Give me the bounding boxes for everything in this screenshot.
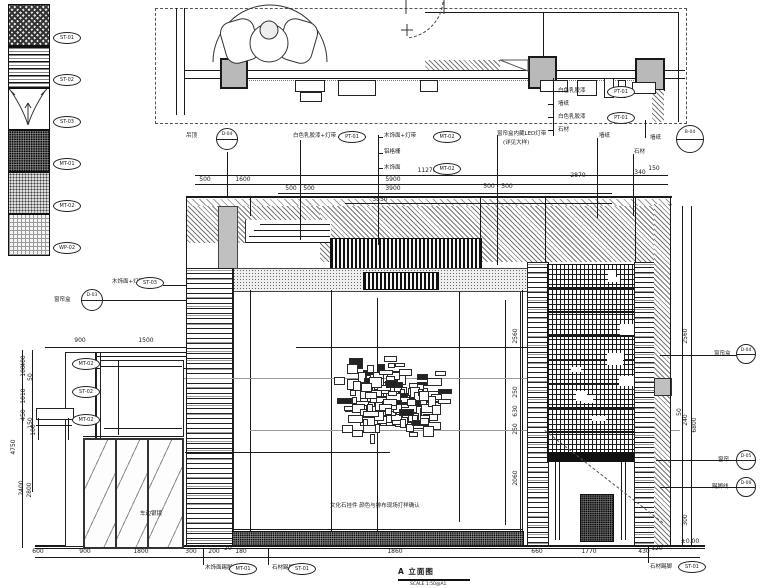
dim-label: 3550	[372, 197, 387, 203]
dim-label: 2060	[513, 470, 519, 485]
annotation: 石材	[634, 149, 645, 155]
art-wall-piece	[399, 409, 414, 415]
leader-line	[548, 91, 554, 92]
art-wall-piece	[399, 369, 412, 376]
callout-divider	[737, 460, 755, 461]
drawing-element	[407, 2, 443, 38]
drawing-title: A 立面图	[398, 566, 508, 577]
legend-swatch-dots-dense	[8, 130, 50, 172]
material-tag: ST-01	[678, 561, 706, 573]
cove-step	[245, 242, 330, 243]
leader-line	[548, 130, 554, 131]
art-wall-piece	[407, 399, 416, 406]
dim-line	[35, 557, 700, 558]
material-tag: ST-02	[72, 386, 100, 398]
detail-callout: B-04	[676, 125, 704, 153]
art-wall-piece	[419, 391, 430, 401]
art-wall-piece	[379, 370, 393, 374]
wall-edge	[232, 268, 233, 545]
annotation: 白色乳胶漆	[558, 88, 586, 94]
dim-line	[520, 292, 521, 533]
leader-line	[645, 120, 646, 138]
side-counter-leg	[38, 418, 39, 440]
annotation: 木饰面	[384, 165, 401, 171]
construction-line	[331, 290, 332, 535]
art-wall-piece	[438, 389, 452, 394]
wall-edge	[522, 290, 523, 535]
dim-label: 250	[513, 423, 519, 434]
annotation: 窗帘盒内藏LED灯带	[497, 131, 546, 137]
side-counter-shelf	[36, 425, 72, 426]
callout-divider	[737, 487, 755, 488]
art-wall-piece	[384, 356, 397, 362]
drawing-scale: SCALE 1:50@A1	[410, 582, 508, 587]
console-table	[547, 452, 634, 462]
annotation: 墙纸	[650, 135, 661, 141]
detail-callout: D-04	[216, 128, 238, 150]
material-tag: PT-01	[607, 86, 635, 98]
annotation: 窗帘盒	[714, 351, 731, 357]
ceiling-stroke	[635, 196, 636, 262]
console-leg	[625, 462, 626, 540]
annotation: 吊顶	[186, 133, 197, 139]
art-wall-piece	[352, 397, 357, 404]
dim-line	[682, 206, 683, 546]
annotation: (详见大样)	[503, 140, 529, 146]
callout-divider	[217, 139, 237, 140]
lattice-opening	[608, 270, 616, 278]
side-counter-leg	[68, 418, 69, 440]
ceiling-line	[186, 196, 672, 198]
dim-line	[278, 193, 612, 194]
mirror-door	[115, 438, 149, 549]
art-wall-piece	[370, 434, 376, 444]
annotation: 窗帘盒	[54, 297, 71, 303]
louver-band-2	[363, 272, 439, 290]
dim-label: 200	[208, 549, 219, 555]
annotation: 踢脚线	[712, 484, 729, 490]
leader-line	[553, 78, 554, 136]
leader-line	[378, 168, 383, 169]
callout-divider	[677, 139, 703, 140]
dim-line	[45, 347, 186, 348]
shelf-line	[100, 366, 182, 367]
dim-label: 2560	[513, 328, 519, 343]
construction-line	[296, 347, 566, 348]
drawing-element	[260, 21, 278, 39]
annotation: 石材	[558, 127, 569, 133]
ceiling-louver-band	[330, 238, 482, 270]
lattice-opening	[584, 395, 594, 403]
dim-label: 2560	[683, 328, 689, 343]
material-tag: PT-01	[338, 131, 366, 143]
annotation: 石材踢脚	[650, 564, 672, 570]
art-wall-piece	[395, 363, 405, 367]
material-tag: MT-02	[72, 358, 100, 370]
dim-label: ±0.00	[681, 539, 699, 545]
legend-material-tag: ST-03	[53, 116, 81, 128]
dim-line	[22, 350, 23, 548]
plan-sofa-door-drawing	[185, 0, 685, 125]
dim-label: 6800	[692, 417, 698, 432]
legend-swatch-grid-light	[8, 214, 50, 256]
art-wall-piece	[352, 430, 364, 437]
dim-label: 180	[235, 549, 246, 555]
art-wall-piece	[334, 377, 345, 385]
legend-material-tag: ST-01	[53, 32, 81, 44]
material-tag: MT-01	[229, 563, 257, 575]
callout-label: B-04	[677, 130, 703, 135]
wall-section-hatch	[654, 204, 670, 545]
legend-material-tag: ST-02	[53, 74, 81, 86]
wall-edge	[250, 290, 251, 535]
dim-label: 2800	[27, 482, 33, 497]
legend-swatch-curtain	[8, 88, 50, 130]
leader-line	[548, 117, 554, 118]
cad-elevation-sheet: ST-01ST-02ST-03MT-01MT-02WP-02	[0, 0, 760, 588]
dim-label: 1600	[235, 177, 250, 183]
mirror-door	[83, 438, 117, 549]
dim-label: 1010	[21, 388, 27, 403]
art-wall-piece	[365, 392, 376, 399]
art-wall-piece	[386, 380, 398, 388]
dim-label: 3900	[385, 186, 400, 192]
leader-line	[597, 138, 598, 218]
dim-label: 4750	[11, 439, 17, 454]
leader-line	[497, 135, 498, 265]
detail-callout: D-05	[736, 450, 756, 470]
construction-line	[505, 300, 506, 525]
lattice-opening	[607, 353, 623, 364]
dim-line	[345, 203, 612, 204]
cove-step	[254, 230, 330, 231]
annotation: 窗帘	[718, 457, 729, 463]
cove-step	[249, 236, 330, 237]
callout-divider	[82, 300, 102, 301]
dim-label: 240	[683, 414, 689, 425]
lattice-opening	[592, 416, 605, 421]
art-wall-piece	[363, 419, 368, 426]
art-wall-piece	[388, 363, 395, 368]
dim-label: 500	[483, 184, 494, 190]
dim-label: 20	[224, 546, 232, 552]
material-tag: MT-02	[433, 131, 461, 143]
curtain-symbol	[9, 89, 47, 127]
dim-label: 500	[285, 186, 296, 192]
annotation: 木饰面+灯带	[384, 133, 416, 139]
dim-label: 5900	[385, 177, 400, 183]
detail-callout: D-03	[81, 289, 103, 311]
dim-label: 120	[651, 546, 662, 552]
door-top-line	[83, 436, 182, 437]
cove-step	[260, 224, 330, 225]
drawing-element	[500, 60, 528, 71]
dim-label: 1770	[581, 549, 596, 555]
material-tag: ST-01	[288, 563, 316, 575]
elevation-left-edge	[186, 196, 187, 545]
annotation: 白色乳胶漆+灯带	[293, 133, 336, 139]
dim-label: 430	[638, 549, 649, 555]
dim-label: 300	[683, 514, 689, 525]
title-underline	[398, 579, 470, 581]
console-leg	[559, 462, 560, 540]
art-wall-piece	[427, 378, 442, 387]
dim-label: 1500	[138, 338, 153, 344]
dim-label: 100	[31, 424, 37, 435]
material-tag: PT-01	[607, 112, 635, 124]
dim-label: 500	[199, 177, 210, 183]
material-tag: ST-03	[136, 277, 164, 289]
annotation: 白色乳胶漆	[558, 114, 586, 120]
detail-callout: D-06	[736, 477, 756, 497]
dim-label: 2400	[19, 480, 25, 495]
dim-label: 300	[185, 549, 196, 555]
art-wall-piece	[388, 391, 397, 397]
construction-line	[185, 452, 390, 453]
wood-panel	[527, 262, 549, 545]
lattice-opening	[571, 367, 581, 373]
callout-divider	[737, 354, 755, 355]
material-tag: MT-02	[72, 414, 100, 426]
legend-swatch-dots-mid	[8, 172, 50, 214]
art-wall-piece	[417, 374, 427, 379]
ceiling-stroke	[250, 196, 251, 216]
art-wall-piece	[423, 426, 434, 437]
leader-line	[548, 104, 554, 105]
art-wall-piece	[337, 398, 353, 404]
shelf-line	[118, 360, 119, 435]
dim-label: 660	[531, 549, 542, 555]
legend-swatch-wood	[8, 46, 50, 88]
annotation: 墙纸	[599, 133, 610, 139]
wood-pilaster-left	[186, 268, 234, 545]
leader-line	[378, 135, 379, 245]
construction-line	[459, 292, 460, 522]
art-wall-piece	[347, 364, 358, 375]
detail-callout: D-04	[736, 344, 756, 364]
art-wall-piece	[361, 383, 372, 391]
leader-line	[102, 300, 186, 301]
annotation: 车边银镜	[140, 511, 162, 517]
mirror-door	[147, 438, 184, 549]
leader-line	[633, 154, 634, 216]
dim-label: 50	[28, 373, 34, 381]
skirting-line	[232, 529, 522, 530]
callout-label: D-04	[217, 132, 237, 137]
leader-line	[163, 285, 186, 286]
callout-label: D-04	[737, 348, 755, 353]
plan-wall	[176, 8, 177, 115]
art-wall-piece	[400, 389, 406, 394]
art-wall-piece	[363, 411, 379, 416]
art-wall-piece	[385, 408, 392, 415]
art-wall-piece	[353, 381, 361, 390]
dim-label: 600	[32, 549, 43, 555]
dim-label: 2870	[570, 173, 585, 179]
legend-swatch-check	[8, 4, 50, 46]
legend-material-tag: WP-02	[53, 242, 81, 254]
callout-label: D-05	[737, 454, 755, 459]
console-leg	[621, 462, 622, 540]
leader-line	[378, 153, 383, 154]
material-tag: MT-02	[433, 163, 461, 175]
ceiling-stroke	[545, 196, 546, 262]
cabinet-upper-shelf	[100, 360, 184, 437]
legend-material-tag: MT-01	[53, 158, 81, 170]
art-wall-piece	[435, 371, 446, 375]
art-wall-piece	[342, 425, 353, 434]
art-wall-piece	[438, 399, 452, 404]
title-block: A 立面图 SCALE 1:50@A1	[398, 566, 508, 587]
dim-line	[691, 206, 692, 546]
leader-line	[227, 152, 228, 196]
elevation-right-edge	[670, 196, 671, 545]
leader-line	[203, 548, 204, 565]
stool	[580, 494, 614, 542]
lattice-opening	[619, 376, 634, 387]
legend-material-tag: MT-02	[53, 200, 81, 212]
drawing-element	[9, 89, 47, 95]
dim-label: 1800	[133, 549, 148, 555]
dim-label: 630	[513, 405, 519, 416]
art-wall-piece	[400, 419, 406, 428]
dim-label: 500	[501, 184, 512, 190]
dim-label: 1860	[387, 549, 402, 555]
dim-label: 900	[79, 549, 90, 555]
dim-label: 340	[634, 170, 645, 176]
callout-label: D-06	[737, 481, 755, 486]
annotation: 墙纸	[558, 101, 569, 107]
leader-line	[378, 137, 383, 138]
shelf-line	[104, 428, 182, 429]
leader-line	[300, 140, 301, 240]
dim-label: 900	[74, 338, 85, 344]
dim-label: 500	[303, 186, 314, 192]
art-wall-piece	[420, 418, 429, 424]
dim-label: 150	[648, 166, 659, 172]
annotation: 文化石挂件 颜色与排布现场打样确认	[330, 503, 420, 509]
annotation: 铝格栅	[384, 149, 401, 155]
art-wall-piece	[409, 432, 418, 437]
skirting-band	[232, 531, 524, 546]
leader-line	[268, 548, 269, 565]
column-section	[218, 206, 238, 272]
callout-label: D-03	[82, 293, 102, 298]
console-leg	[555, 462, 556, 540]
art-wall-piece	[348, 415, 363, 423]
dim-label: 250	[513, 386, 519, 397]
